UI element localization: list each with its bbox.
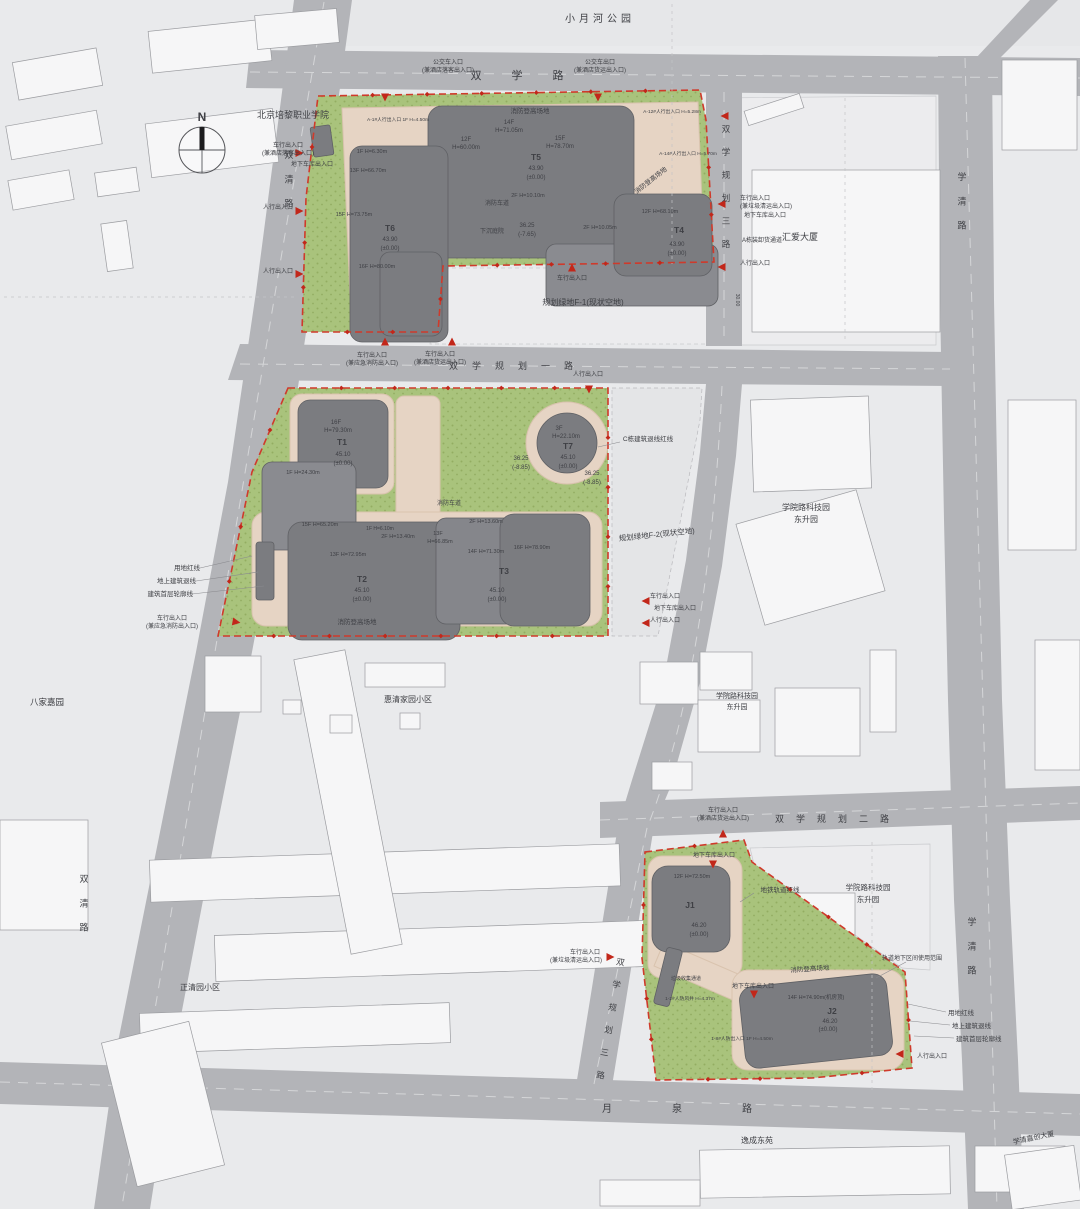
- context-building: [0, 820, 88, 930]
- redline-note: 地铁轨道红线: [761, 885, 801, 894]
- context-building: [400, 713, 420, 729]
- plan-note: 消防登高场地: [338, 617, 378, 626]
- redline-note: 建筑首层轮廓线: [148, 589, 194, 598]
- context-label: 学院路科技园: [716, 691, 758, 700]
- context-building: [255, 8, 340, 49]
- park-strip: [330, 0, 1080, 46]
- elevation-note: (-8.85): [583, 480, 601, 486]
- elevation-note: 36.25: [584, 471, 600, 477]
- context-building: [365, 663, 445, 687]
- site-plan-map: N 小月河公园双学路双清路双清路学清路学清路双学规划一路双学规划二路双学规划三路…: [0, 0, 1080, 1209]
- building-label: H=78.70m: [546, 144, 574, 150]
- building-label: 2F H=13.60m: [469, 519, 503, 525]
- building-label: 45.10: [335, 452, 351, 458]
- context-building: [1002, 60, 1077, 150]
- redline-note: 用地红线: [948, 1008, 975, 1017]
- road-label: 月泉路: [602, 1102, 812, 1115]
- context-building: [870, 650, 896, 732]
- building-label: (±0.00): [559, 464, 578, 470]
- road-label: 双清路: [79, 874, 88, 933]
- entrance-label: 地下车库出入口: [732, 982, 774, 990]
- entrance-label: (兼应急消防出入口): [346, 359, 398, 367]
- plan-note: 下沉庭院: [480, 227, 504, 235]
- entrance-label: 地下车库出入口: [291, 160, 333, 168]
- building-label: 13F: [433, 531, 443, 537]
- elevation-note: (-7.65): [518, 232, 536, 238]
- entrance-label: (兼酒店货运出入口): [697, 814, 749, 822]
- building-label: H=79.30m: [324, 428, 352, 434]
- building-label: 2F H=10.10m: [511, 193, 545, 199]
- context-label: 汇爱大厦: [782, 231, 818, 242]
- context-label: 学院路科技园: [846, 882, 891, 892]
- minor-note: A-1#人行出入口 1F H=4.50m: [367, 116, 429, 123]
- context-label: 北京培黎职业学院: [257, 109, 329, 120]
- building-label: 46.20: [691, 923, 707, 929]
- building-label: (±0.00): [381, 246, 400, 252]
- context-building: [1005, 1145, 1080, 1209]
- redline-note: 轨道地下区间使用范围: [882, 954, 942, 962]
- building-label: H=71.05m: [495, 128, 523, 134]
- building-label: 12F H=68.10m: [642, 209, 679, 215]
- entrance-label: 地下车库出入口: [693, 851, 735, 859]
- building-label: 13F H=66.70m: [350, 168, 387, 174]
- entrance-label: 车行出入口: [157, 614, 187, 622]
- context-building: [640, 662, 698, 704]
- redline-note: 地上建筑退线: [952, 1021, 992, 1030]
- context-label: 东升园: [857, 894, 880, 904]
- building-label: 2F H=13.40m: [381, 534, 415, 540]
- elevation-note: 36.25: [513, 456, 529, 462]
- entrance-label: 地下车库出入口: [744, 211, 786, 219]
- context-label: 学院路科技园: [782, 502, 830, 512]
- minor-note: A-12#人行出入口 H=5.28m: [643, 108, 701, 115]
- building-label: 15F: [555, 136, 566, 142]
- site-plan-stage: N 小月河公园双学路双清路双清路学清路学清路双学规划一路双学规划二路双学规划三路…: [0, 0, 1080, 1209]
- road-label: 双学规划一路: [449, 360, 587, 371]
- context-building: [652, 762, 692, 790]
- building-label: 13F H=72.95m: [330, 552, 367, 558]
- minor-note: 1-8#人防出入口 1F H=4.50m: [711, 1035, 772, 1042]
- entrance-label: 人行出入口: [263, 267, 293, 275]
- entrance-label: 人行出入口: [917, 1052, 947, 1060]
- entrance-label: 人行出入口: [650, 616, 680, 624]
- context-building: [1035, 640, 1080, 770]
- building-label: 45.10: [560, 455, 576, 461]
- building-label: 1F H=6.10m: [366, 526, 394, 532]
- context-building: [700, 1146, 951, 1198]
- tower-id: T5: [531, 152, 541, 162]
- entrance-label: 人行出入口: [573, 370, 603, 378]
- entrance-label: 地下车库出入口: [654, 604, 696, 612]
- entrance-label: 公交车入口: [433, 58, 463, 66]
- minor-note: 1-2#人防风井 H=4.37m: [665, 995, 715, 1002]
- building-label: 45.10: [489, 588, 505, 594]
- road-label: 学清路: [957, 171, 966, 231]
- road-label: 双清路: [284, 150, 293, 209]
- minor-note: 垃圾收集通道: [671, 975, 701, 982]
- redline-note: C栋建筑退线红线: [623, 434, 674, 443]
- dim-note: 30.00: [734, 294, 740, 307]
- context-building: [750, 396, 871, 492]
- building-label: 45.10: [354, 588, 370, 594]
- entrance-label: 人行出入口: [263, 203, 293, 211]
- building-label: 3F: [555, 426, 562, 432]
- redline-note: 用地红线: [174, 563, 201, 572]
- building-label: 14F H=71.30m: [468, 549, 505, 555]
- compass-needle: [200, 127, 205, 150]
- park-label: 小月河公园: [565, 13, 635, 25]
- tower-id: T1: [337, 437, 347, 447]
- context-building: [205, 656, 261, 712]
- entrance-label: (兼垃圾清运出入口): [550, 956, 602, 964]
- building-label: 14F H=74.90m(机房顶): [788, 993, 845, 1001]
- entrance-label: 车行出入口: [740, 194, 770, 202]
- road-label: 学清路: [967, 916, 976, 976]
- tower-id: T2: [357, 574, 367, 584]
- context-building: [283, 700, 301, 714]
- entrance-label: (兼酒店落客出入口): [422, 66, 474, 74]
- redline-note: 地上建筑退线: [157, 576, 197, 585]
- plan-note: 消防登高场地: [511, 106, 551, 115]
- elevation-note: (-8.85): [512, 465, 530, 471]
- tower-id: T6: [385, 223, 395, 233]
- compass-n-label: N: [198, 110, 207, 124]
- context-label: 惠清家园小区: [384, 694, 432, 704]
- entrance-label: 车行出入口: [570, 948, 600, 956]
- entrance-label: 车行出入口: [708, 806, 738, 814]
- context-label: 正清园小区: [180, 982, 220, 992]
- context-building: [775, 688, 860, 756]
- building-label: 14F: [504, 120, 515, 126]
- building-label: 2F H=10.05m: [583, 225, 617, 231]
- tower-id: T7: [563, 441, 573, 451]
- building-label: 43.90: [669, 242, 685, 248]
- building-label: 15F H=65.20m: [302, 522, 339, 528]
- road-label: 双学规划二路: [775, 813, 901, 824]
- building-label: 16F: [331, 420, 342, 426]
- context-building: [1008, 400, 1076, 550]
- context-label: 东升园: [727, 702, 748, 711]
- building-label: (±0.00): [334, 461, 353, 467]
- entrance-label: 公交车出口: [585, 58, 615, 66]
- building-label: 16F H=80.00m: [359, 264, 396, 270]
- elevation-note: 36.25: [519, 223, 535, 229]
- tower-id: J1: [685, 900, 695, 910]
- context-building: [330, 715, 352, 733]
- building-label: (±0.00): [819, 1027, 838, 1033]
- entrance-label: (兼酒店落客出入口): [262, 149, 314, 157]
- entrance-label: (兼垃圾清运出入口): [740, 202, 792, 210]
- plan-note: 规划绿地F-1(现状空地): [542, 297, 624, 307]
- plan-note: 消防车道: [485, 199, 509, 207]
- building-label: 16F H=78.90m: [514, 545, 551, 551]
- entrance-label: 车行出入口: [425, 350, 455, 358]
- entrance-label: (兼酒店货运出入口): [414, 358, 466, 366]
- building-label: 12F: [461, 137, 472, 143]
- entrance-label: 车行出入口: [650, 592, 680, 600]
- building-label: 12F H=72.50m: [674, 874, 711, 880]
- entrance-label: (兼酒店货运出入口): [574, 66, 626, 74]
- redline-note: 建筑首层轮廓线: [956, 1034, 1002, 1043]
- entrance-label: A栋装卸货通道: [742, 236, 782, 244]
- building-label: (±0.00): [353, 597, 372, 603]
- minor-note: A-14#人行出入口 H=5.70m: [659, 150, 717, 157]
- entrance-label: (兼应急消防出入口): [146, 622, 198, 630]
- building-label: 46.20: [822, 1019, 838, 1025]
- entrance-label: 车行出入口: [357, 351, 387, 359]
- building-label: 43.90: [528, 166, 544, 172]
- tower-id: T3: [499, 566, 509, 576]
- building-label: (±0.00): [690, 932, 709, 938]
- tower-id: J2: [827, 1006, 837, 1016]
- entrance-label: 车行出入口: [273, 141, 303, 149]
- entrance-label: 车行出入口: [557, 274, 587, 282]
- entrance-label: 人行出入口: [740, 259, 770, 267]
- building-label: H=60.00m: [452, 145, 480, 151]
- building-label: (±0.00): [527, 175, 546, 181]
- building-mass: [500, 514, 590, 626]
- context-building: [752, 170, 940, 332]
- building-label: 1F H=24.30m: [286, 470, 320, 476]
- context-label: 八家嘉园: [30, 697, 64, 707]
- plan-note: 消防车道: [437, 499, 461, 507]
- context-label: 逸成东苑: [741, 1135, 773, 1145]
- building-label: 1F H=6.30m: [357, 149, 388, 155]
- context-building: [700, 652, 752, 690]
- tower-id: T4: [674, 225, 684, 235]
- building-label: (±0.00): [668, 251, 687, 257]
- building-label: 43.90: [382, 237, 398, 243]
- building-label: (±0.00): [488, 597, 507, 603]
- building-mass: [256, 542, 274, 600]
- building-label: H=66.85m: [427, 539, 453, 545]
- context-building: [600, 1180, 700, 1206]
- context-label: 东升园: [794, 514, 818, 524]
- building-label: 15F H=73.75m: [336, 212, 373, 218]
- building-label: H=22.10m: [552, 434, 580, 440]
